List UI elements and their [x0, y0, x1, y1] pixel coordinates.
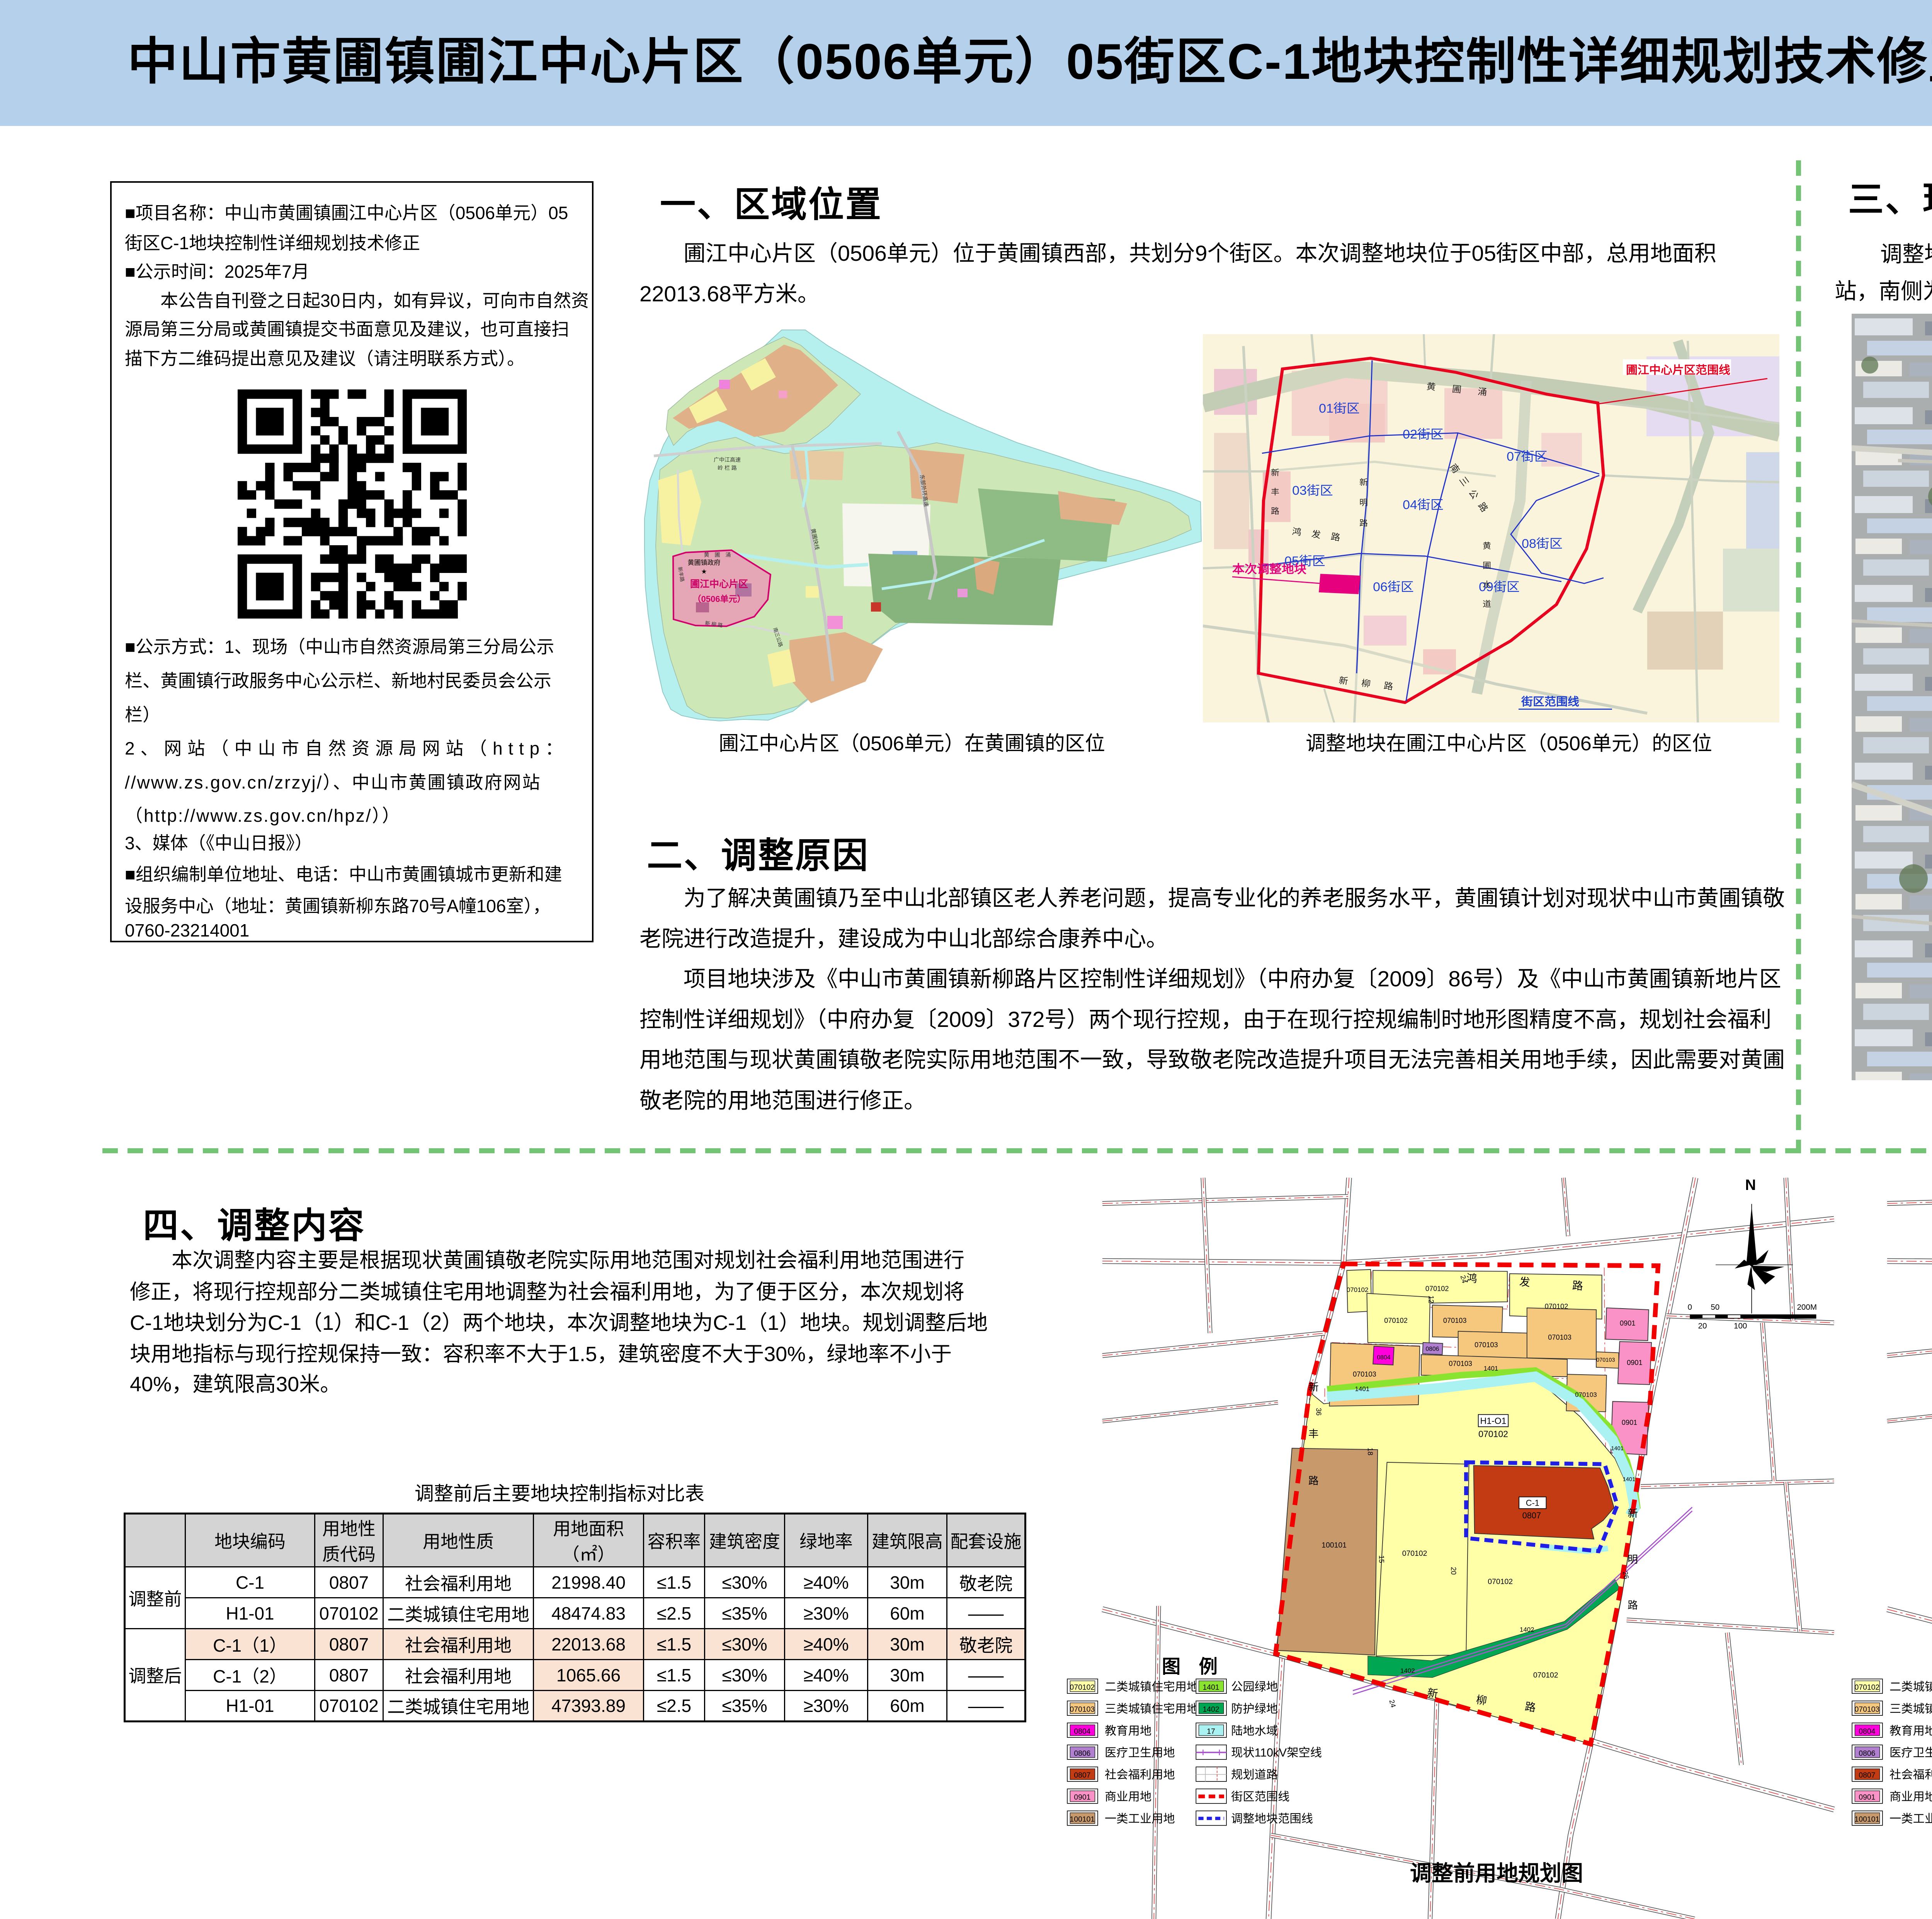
svg-text:路: 路 [1308, 1475, 1319, 1487]
svg-text:070102: 070102 [1488, 1577, 1513, 1586]
svg-text:H1-O1: H1-O1 [1480, 1416, 1507, 1426]
svg-text:路: 路 [1359, 518, 1368, 527]
svg-text:08街区: 08街区 [1522, 537, 1563, 551]
svg-text:新: 新 [1271, 468, 1279, 477]
svg-text:06街区: 06街区 [1373, 580, 1414, 594]
svg-text:24: 24 [1388, 1699, 1398, 1708]
svg-text:0804: 0804 [1859, 1727, 1875, 1735]
svg-text:20: 20 [1698, 1321, 1707, 1330]
svg-text:商业用地: 商业用地 [1105, 1790, 1151, 1803]
svg-text:二类城镇住宅用地: 二类城镇住宅用地 [1105, 1680, 1198, 1693]
svg-text:街区范围线: 街区范围线 [1231, 1790, 1289, 1803]
svg-text:路: 路 [1628, 1599, 1638, 1611]
svg-text:17: 17 [1207, 1727, 1215, 1735]
svg-text:0901: 0901 [1622, 1419, 1637, 1426]
svg-text:圃江中心片区范围线: 圃江中心片区范围线 [1626, 364, 1730, 376]
svg-text:公园绿地: 公园绿地 [1231, 1680, 1278, 1693]
svg-text:26: 26 [1621, 1571, 1630, 1579]
svg-text:三类城镇住宅用地: 三类城镇住宅用地 [1105, 1702, 1198, 1715]
svg-text:丰: 丰 [1271, 488, 1279, 496]
svg-text:新: 新 [1308, 1382, 1319, 1393]
svg-text:（0506单元）: （0506单元） [693, 594, 746, 604]
svg-text:本次调整地块: 本次调整地块 [1232, 563, 1307, 576]
svg-text:0901: 0901 [1859, 1793, 1875, 1802]
svg-text:0806: 0806 [1426, 1346, 1439, 1353]
svg-text:0806: 0806 [1074, 1749, 1090, 1758]
svg-text:0807: 0807 [1859, 1771, 1875, 1780]
svg-text:0: 0 [1688, 1303, 1692, 1312]
svg-text:1402: 1402 [1400, 1667, 1415, 1674]
svg-text:教育用地: 教育用地 [1105, 1724, 1151, 1737]
svg-text:防护绿地: 防护绿地 [1231, 1702, 1278, 1715]
svg-text:070103: 070103 [1548, 1334, 1571, 1341]
svg-text:N: N [1745, 1177, 1756, 1193]
svg-text:医疗卫生用地: 医疗卫生用地 [1105, 1746, 1175, 1759]
svg-text:一类工业用地: 一类工业用地 [1889, 1812, 1932, 1825]
svg-text:1401: 1401 [1355, 1385, 1369, 1393]
svg-text:丰: 丰 [1308, 1428, 1319, 1440]
svg-text:C-1: C-1 [1526, 1498, 1539, 1508]
svg-text:商业用地: 商业用地 [1889, 1790, 1932, 1803]
svg-text:04街区: 04街区 [1403, 498, 1444, 512]
svg-text:现状110kV架空线: 现状110kV架空线 [1231, 1746, 1322, 1759]
svg-text:一类工业用地: 一类工业用地 [1105, 1812, 1175, 1825]
svg-text:20: 20 [1450, 1567, 1458, 1575]
svg-text:0804: 0804 [1074, 1727, 1090, 1735]
svg-text:0804: 0804 [1377, 1354, 1391, 1361]
svg-text:070103: 070103 [1449, 1360, 1472, 1367]
svg-text:广中江高速: 广中江高速 [714, 457, 741, 463]
svg-text:★: ★ [701, 568, 707, 575]
svg-text:道: 道 [1483, 600, 1491, 609]
svg-text:18: 18 [1366, 1448, 1374, 1455]
svg-text:03街区: 03街区 [1292, 484, 1333, 498]
svg-text:070103: 070103 [1596, 1357, 1615, 1363]
svg-text:0806: 0806 [1859, 1749, 1875, 1758]
svg-text:黄圃镇政府: 黄圃镇政府 [688, 559, 721, 566]
svg-text:三类城镇住宅用地: 三类城镇住宅用地 [1889, 1702, 1932, 1715]
svg-text:岭 栏 路: 岭 栏 路 [718, 465, 737, 471]
svg-text:1402: 1402 [1520, 1626, 1534, 1633]
svg-text:1401: 1401 [1623, 1476, 1635, 1482]
svg-text:070102: 070102 [1347, 1286, 1369, 1293]
svg-text:圃江中心片区: 圃江中心片区 [690, 579, 748, 590]
svg-text:0901: 0901 [1620, 1319, 1635, 1327]
svg-text:12: 12 [1427, 1295, 1435, 1303]
svg-text:新: 新 [1628, 1508, 1638, 1520]
svg-text:070102: 070102 [1402, 1549, 1427, 1558]
svg-text:水: 水 [1483, 580, 1491, 589]
svg-text:070102: 070102 [1384, 1317, 1408, 1324]
svg-text:圃: 圃 [1483, 561, 1491, 570]
svg-text:07街区: 07街区 [1507, 450, 1548, 464]
svg-text:0807: 0807 [1522, 1511, 1541, 1520]
svg-text:070103: 070103 [1070, 1705, 1095, 1713]
svg-text:规划道路: 规划道路 [1231, 1768, 1278, 1781]
svg-text:01街区: 01街区 [1319, 402, 1360, 416]
svg-text:02街区: 02街区 [1403, 428, 1444, 442]
svg-text:街区范围线: 街区范围线 [1521, 696, 1579, 708]
svg-text:36: 36 [1315, 1408, 1323, 1416]
svg-text:0901: 0901 [1627, 1359, 1642, 1367]
svg-text:070103: 070103 [1353, 1370, 1376, 1378]
svg-text:1401: 1401 [1484, 1365, 1498, 1372]
svg-text:1401: 1401 [1202, 1683, 1219, 1692]
svg-text:070103: 070103 [1443, 1317, 1467, 1324]
svg-text:100: 100 [1734, 1321, 1747, 1330]
svg-text:医疗卫生用地: 医疗卫生用地 [1889, 1746, 1932, 1759]
svg-text:100101: 100101 [1070, 1815, 1095, 1824]
svg-text:070102: 070102 [1545, 1303, 1568, 1310]
svg-text:1402: 1402 [1202, 1705, 1219, 1713]
svg-text:路: 路 [1271, 507, 1279, 516]
svg-text:070102: 070102 [1425, 1285, 1449, 1293]
svg-text:070102: 070102 [1478, 1429, 1508, 1439]
svg-text:社会福利用地: 社会福利用地 [1889, 1768, 1932, 1781]
svg-text:1401: 1401 [1611, 1445, 1623, 1452]
svg-text:二类城镇住宅用地: 二类城镇住宅用地 [1889, 1680, 1932, 1693]
svg-text:新: 新 [1359, 478, 1368, 487]
svg-text:教育用地: 教育用地 [1889, 1724, 1932, 1737]
svg-text:200M: 200M [1797, 1303, 1816, 1312]
svg-text:15: 15 [1378, 1555, 1385, 1563]
svg-text:070102: 070102 [1533, 1671, 1558, 1679]
svg-text:100101: 100101 [1855, 1815, 1880, 1824]
svg-text:070103: 070103 [1575, 1391, 1597, 1398]
svg-text:黄 圃 涌: 黄 圃 涌 [704, 552, 733, 558]
svg-text:0807: 0807 [1074, 1771, 1090, 1780]
svg-text:50: 50 [1711, 1303, 1719, 1312]
svg-text:陆地水域: 陆地水域 [1231, 1724, 1278, 1737]
svg-text:明: 明 [1359, 498, 1368, 507]
svg-text:黄: 黄 [1483, 542, 1491, 551]
svg-text:070103: 070103 [1475, 1341, 1498, 1349]
svg-text:图 例: 图 例 [1162, 1656, 1224, 1677]
svg-text:0901: 0901 [1074, 1793, 1090, 1802]
svg-text:明: 明 [1628, 1554, 1638, 1565]
svg-text:070103: 070103 [1855, 1705, 1880, 1713]
svg-text:070102: 070102 [1070, 1683, 1095, 1692]
svg-text:070102: 070102 [1855, 1683, 1880, 1692]
svg-text:调整地块范围线: 调整地块范围线 [1231, 1812, 1313, 1825]
svg-text:社会福利用地: 社会福利用地 [1105, 1768, 1175, 1781]
svg-text:100101: 100101 [1321, 1541, 1347, 1549]
